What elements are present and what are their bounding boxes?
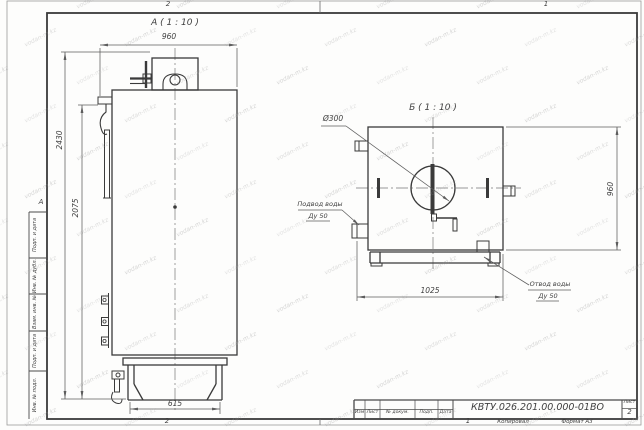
zone-letter-left: А (36, 199, 46, 206)
view-a-linework (61, 44, 237, 414)
title-block-col-doc: № докум. (380, 411, 415, 416)
side-stamp-cell4: Подп. и дата (33, 331, 43, 371)
view-b-title: Б ( 1 : 10 ) (403, 104, 463, 113)
title-block-sheet-label: Лист (622, 401, 637, 406)
side-stamp-cell2: Инв. № дубл. (33, 258, 43, 294)
side-stamp-cell5: Инв. № подл. (33, 371, 43, 419)
title-block-col-izm: Изм (354, 411, 365, 416)
side-stamp-cell3: Взам. инв. № (33, 293, 43, 331)
zone-number-top-left: 2 (163, 1, 173, 8)
outlet-label-line2: Ду 50 (530, 293, 566, 300)
outlet-label-line1: Отвод воды (527, 281, 573, 288)
view-a-title: А ( 1 : 10 ) (145, 19, 205, 28)
footer-format: Формат А3 (552, 420, 602, 426)
view-a-dim-615: 615 (160, 400, 190, 408)
view-b-linework (298, 117, 621, 301)
title-block-col-sign: Подп. (415, 411, 438, 416)
view-b-dim-960: 960 (607, 176, 617, 202)
view-b-dim-arrows (353, 127, 619, 298)
view-a-dim-2075: 2075 (72, 195, 82, 221)
inlet-label-line1: Подвод воды (297, 201, 343, 208)
view-a-dim-2430: 2430 (56, 127, 66, 153)
zone-number-bottom-right: 1 (463, 418, 473, 425)
view-b-dim-d300: Ø300 (318, 115, 348, 123)
footer-copied: Копировал (488, 420, 538, 426)
title-block-col-date: Дата (438, 411, 453, 416)
view-a-dim-960: 960 (156, 33, 182, 41)
zone-number-top-right: 1 (541, 1, 551, 8)
drawing-sheet: 2 1 2 1 А А ( 1 : 10 ) 960 2430 2075 615… (0, 0, 644, 430)
view-b-dim-1025: 1025 (412, 287, 448, 295)
inlet-label-line2: Ду 50 (300, 213, 336, 220)
zone-number-bottom-left: 2 (162, 418, 172, 425)
side-stamp-cell1: Подп. и дата (33, 212, 43, 258)
title-block-col-list: Лист (365, 411, 380, 416)
title-block-doc-number: КВТУ.026.201.00.000-01ВО (453, 403, 622, 413)
title-block-sheet-number: 2 (622, 409, 637, 416)
